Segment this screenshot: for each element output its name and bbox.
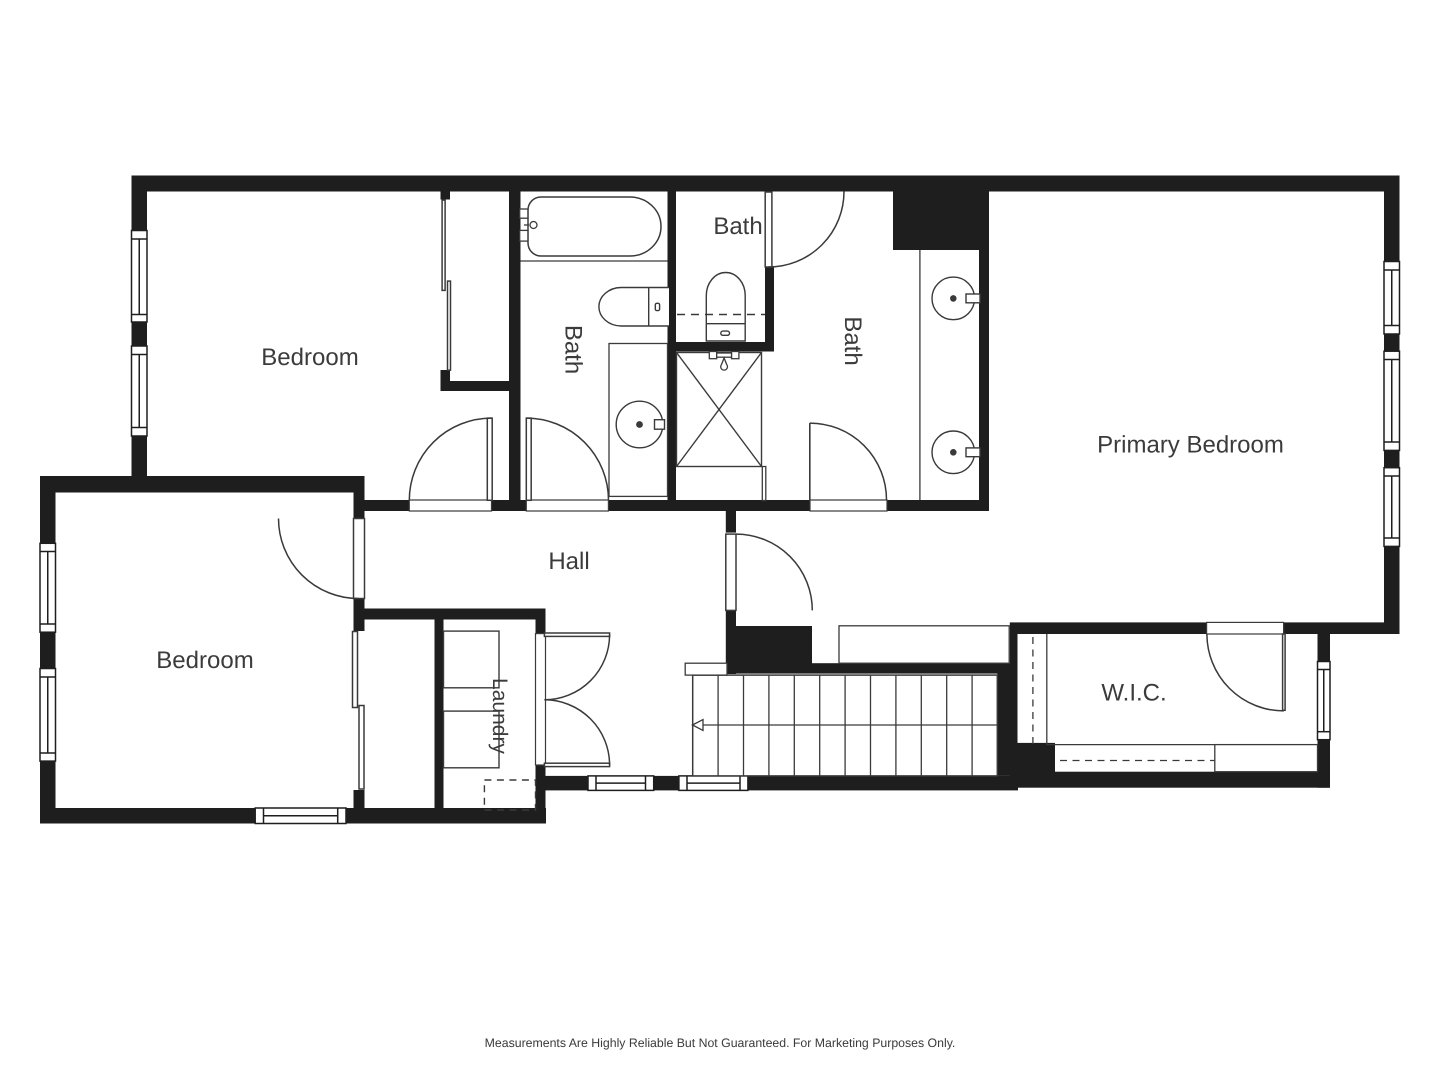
svg-text:Bedroom: Bedroom bbox=[156, 647, 253, 674]
svg-text:Laundry: Laundry bbox=[488, 678, 511, 754]
svg-text:Measurements Are Highly Reliab: Measurements Are Highly Reliable But Not… bbox=[485, 1036, 956, 1050]
svg-text:Hall: Hall bbox=[548, 548, 589, 575]
svg-text:Bath: Bath bbox=[560, 325, 587, 374]
svg-text:W.I.C.: W.I.C. bbox=[1101, 680, 1166, 707]
svg-text:Bedroom: Bedroom bbox=[261, 344, 358, 371]
svg-text:Bath: Bath bbox=[713, 213, 762, 240]
svg-text:Bath: Bath bbox=[839, 316, 866, 365]
svg-text:Primary Bedroom: Primary Bedroom bbox=[1097, 432, 1284, 459]
